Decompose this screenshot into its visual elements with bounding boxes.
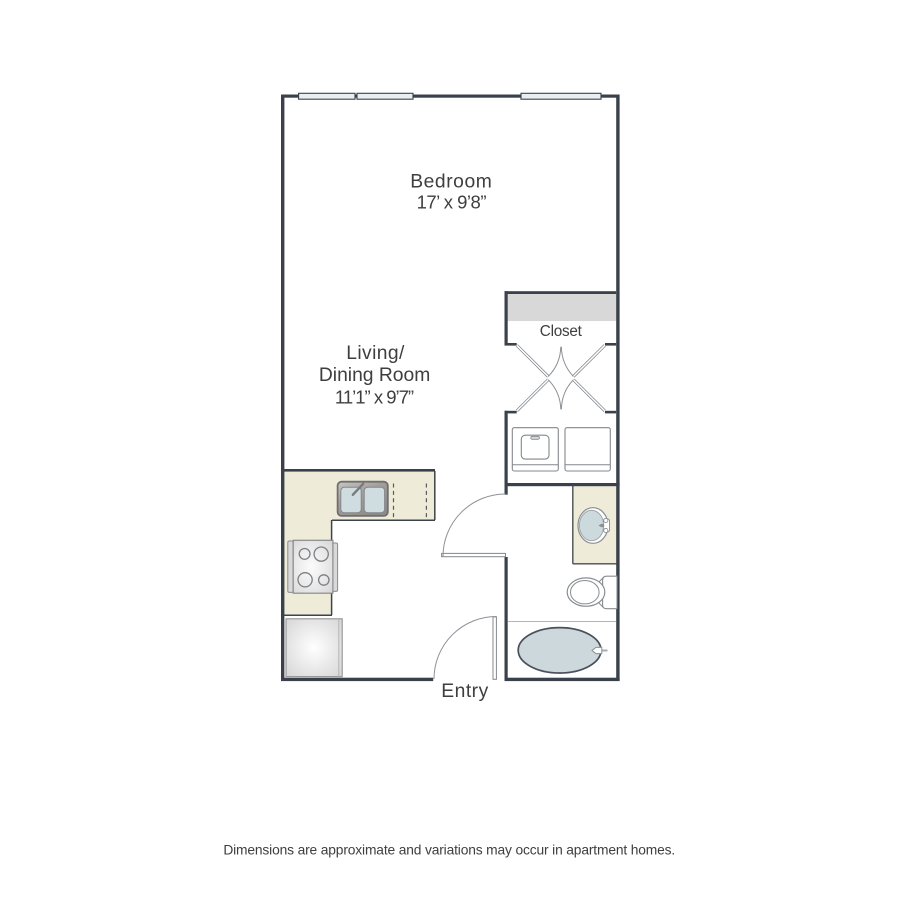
svg-text:Closet: Closet	[540, 323, 583, 340]
svg-text:17’ x 9’8”: 17’ x 9’8”	[417, 192, 487, 213]
svg-text:11’1” x 9’7”: 11’1” x 9’7”	[335, 387, 414, 408]
svg-text:Dining Room: Dining Room	[319, 365, 430, 386]
svg-text:Dimensions are approximate and: Dimensions are approximate and variation…	[223, 842, 675, 857]
svg-text:Entry: Entry	[441, 681, 489, 702]
svg-text:Living/: Living/	[346, 343, 405, 364]
svg-text:Bedroom: Bedroom	[410, 172, 492, 193]
